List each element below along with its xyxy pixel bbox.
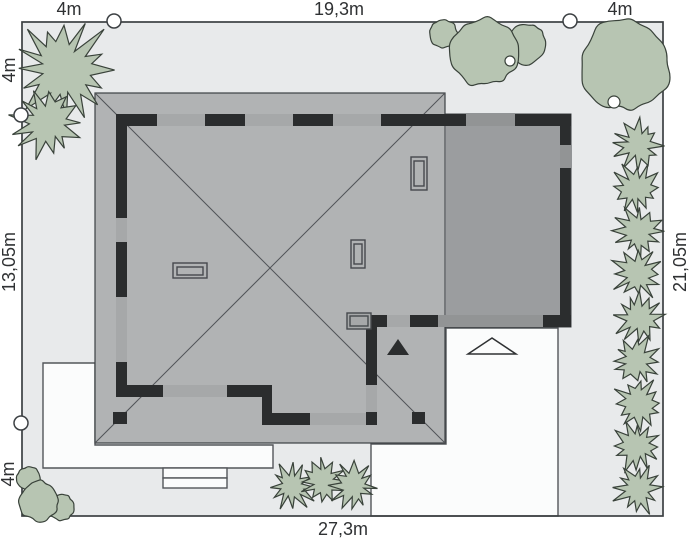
window-opening [245,114,293,126]
window-opening [116,218,127,242]
dim-left-middle: 13,05m [0,232,18,292]
survey-point [14,108,28,122]
tree-trunk-marker [608,96,620,108]
door-opening [366,385,377,412]
window-opening [387,315,410,327]
skylight-window-inner [354,244,362,264]
dim-left-bottom: 4m [0,461,17,486]
skylight-window-inner [177,267,203,275]
skylight-window-inner [414,161,424,186]
window-opening [116,297,127,362]
roof-hatch [412,412,425,424]
survey-point [14,416,28,430]
tree-trunk-marker [505,56,515,66]
window-opening [310,413,366,425]
garage-wing [445,114,571,327]
site-plan-drawing [0,0,691,541]
dim-top-right: 4m [607,0,632,18]
garage-window-opening [560,145,571,168]
garage-window-opening [466,114,515,126]
survey-point [107,14,121,28]
dim-left-top: 4m [0,57,18,82]
site-plan: 4m 19,3m 4m 4m 13,05m 4m 21,05m 27,3m [0,0,691,541]
wall-window-inner [350,316,368,326]
window-opening [157,114,205,126]
dim-top-left: 4m [56,0,81,18]
dim-top-center: 19,3m [314,0,364,18]
dim-bottom-center: 27,3m [318,520,368,538]
terrace-step-1 [163,468,227,478]
window-opening [333,114,381,126]
dim-right-middle: 21,05m [671,232,689,292]
survey-point [563,14,577,28]
garage-roof [445,126,560,315]
garage-door-opening [438,315,543,327]
terrace-door-opening [163,385,227,397]
roof-hatch [113,412,127,424]
terrace-step-2 [163,478,227,488]
